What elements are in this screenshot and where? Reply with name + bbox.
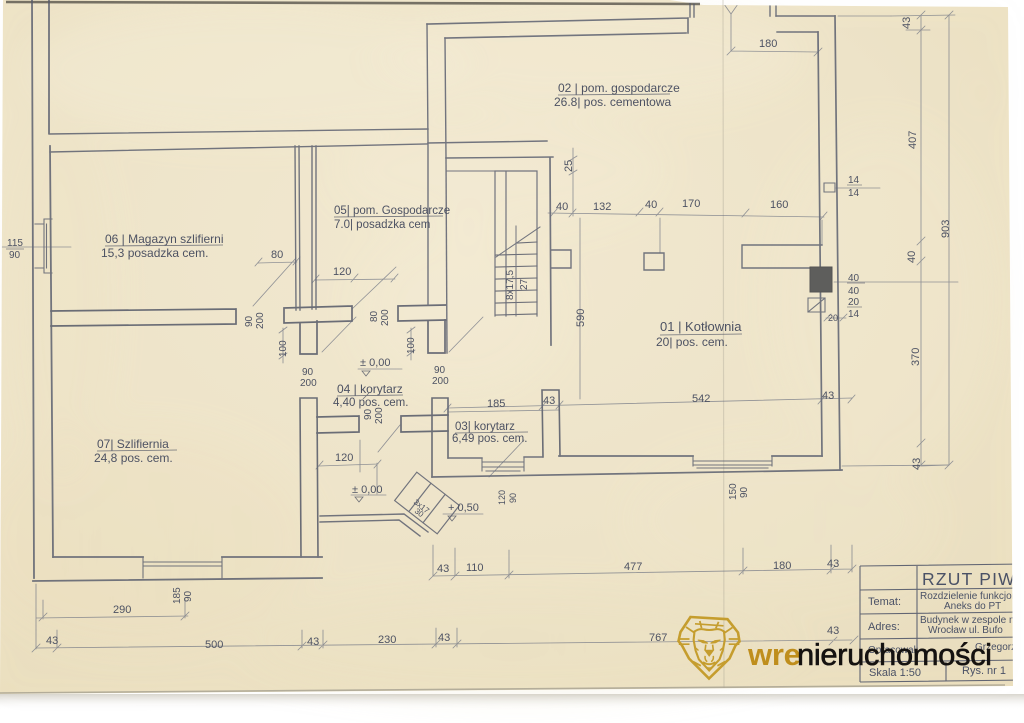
svg-text:8x17,5: 8x17,5: [505, 270, 516, 300]
svg-text:185: 185: [487, 398, 505, 410]
svg-text:27: 27: [519, 278, 530, 290]
svg-text:500: 500: [205, 639, 223, 651]
svg-text:80: 80: [271, 249, 283, 261]
svg-text:6,49 pos. cem.: 6,49 pos. cem.: [452, 433, 527, 445]
svg-text:Adres:: Adres:: [868, 621, 900, 633]
svg-text:43: 43: [827, 558, 839, 570]
svg-text:Temat:: Temat:: [868, 596, 901, 608]
svg-text:110: 110: [466, 562, 484, 574]
svg-text:04 | korytarz: 04 | korytarz: [337, 382, 403, 396]
svg-text:06 | Magazyn szlifierni: 06 | Magazyn szlifierni: [105, 232, 224, 246]
svg-text:903: 903: [940, 220, 952, 238]
svg-text:200: 200: [300, 378, 317, 389]
svg-text:767: 767: [649, 632, 667, 644]
svg-text:90: 90: [302, 367, 314, 378]
svg-text:14: 14: [848, 175, 860, 186]
svg-text:170: 170: [682, 198, 700, 210]
svg-text:43: 43: [822, 390, 834, 402]
svg-text:43: 43: [911, 458, 923, 470]
svg-text:15,3 posadzka cem.: 15,3 posadzka cem.: [101, 246, 208, 260]
svg-text:05| pom. Gospodarcze: 05| pom. Gospodarcze: [334, 205, 450, 217]
svg-text:40: 40: [848, 286, 860, 297]
svg-text:120: 120: [335, 452, 353, 464]
svg-text:03| korytarz: 03| korytarz: [455, 421, 515, 433]
svg-text:542: 542: [692, 393, 710, 405]
svg-text:20| pos. cem.: 20| pos. cem.: [656, 335, 728, 349]
svg-text:RZUT PIWNIC: RZUT PIWNIC: [922, 569, 1024, 589]
svg-text:14: 14: [848, 188, 860, 199]
svg-text:43: 43: [827, 625, 839, 637]
svg-text:150: 150: [728, 483, 739, 500]
svg-text:Wrocław ul. Bufo: Wrocław ul. Bufo: [928, 625, 1003, 636]
svg-text:wre: wre: [747, 637, 801, 672]
svg-text:40: 40: [848, 273, 860, 284]
svg-text:80: 80: [369, 310, 380, 322]
svg-text:477: 477: [624, 561, 642, 573]
svg-text:200: 200: [255, 312, 266, 329]
svg-text:90: 90: [9, 250, 21, 261]
svg-text:230: 230: [378, 634, 396, 646]
svg-text:200: 200: [380, 309, 391, 326]
svg-text:4,40 pos. cem.: 4,40 pos. cem.: [333, 397, 408, 409]
svg-text:43: 43: [46, 635, 58, 647]
svg-text:40: 40: [556, 201, 568, 213]
svg-text:26.8| pos. cementowa: 26.8| pos. cementowa: [554, 95, 672, 109]
svg-text:± 0,00: ± 0,00: [360, 357, 391, 369]
svg-text:120: 120: [333, 266, 351, 278]
svg-text:100: 100: [406, 337, 417, 354]
svg-text:+ 0,50: + 0,50: [448, 502, 479, 514]
svg-text:nieruchomości: nieruchomości: [797, 637, 992, 672]
svg-text:90: 90: [434, 365, 446, 376]
svg-text:24,8 pos. cem.: 24,8 pos. cem.: [94, 451, 173, 465]
svg-text:90: 90: [363, 408, 374, 420]
svg-text:40: 40: [645, 199, 657, 211]
svg-text:132: 132: [593, 201, 611, 213]
svg-text:180: 180: [773, 560, 791, 572]
svg-text:90: 90: [244, 315, 255, 327]
svg-text:407: 407: [907, 131, 919, 149]
svg-text:20: 20: [828, 313, 838, 323]
svg-text:160: 160: [770, 199, 788, 211]
svg-text:40: 40: [906, 251, 918, 263]
svg-text:Aneks do PT: Aneks do PT: [944, 601, 1001, 612]
svg-text:90: 90: [508, 493, 518, 503]
svg-text:20: 20: [848, 297, 860, 308]
svg-text:02 | pom. gospodarcze: 02 | pom. gospodarcze: [558, 81, 680, 95]
svg-text:200: 200: [432, 376, 449, 387]
svg-text:43: 43: [438, 632, 450, 644]
svg-text:43: 43: [543, 395, 555, 407]
svg-text:43: 43: [901, 17, 913, 29]
svg-text:90: 90: [739, 486, 750, 498]
svg-text:100: 100: [278, 340, 289, 357]
svg-text:7.0| posadzka cem: 7.0| posadzka cem: [334, 219, 430, 231]
svg-text:01 | Kotłownia: 01 | Kotłownia: [660, 319, 742, 334]
svg-text:25: 25: [563, 160, 575, 172]
svg-text:± 0,00: ± 0,00: [352, 484, 383, 496]
svg-text:200: 200: [374, 407, 385, 424]
svg-text:370: 370: [910, 348, 922, 366]
svg-text:43: 43: [307, 636, 319, 648]
svg-text:14: 14: [848, 309, 860, 320]
svg-text:185: 185: [172, 587, 183, 604]
svg-text:290: 290: [113, 604, 131, 616]
svg-text:180: 180: [759, 38, 777, 50]
svg-text:07| Szlifiernia: 07| Szlifiernia: [97, 437, 169, 451]
svg-text:43: 43: [437, 563, 449, 575]
svg-text:590: 590: [575, 309, 587, 327]
svg-text:115: 115: [7, 238, 23, 249]
svg-text:90: 90: [183, 590, 194, 602]
svg-text:120: 120: [497, 490, 507, 505]
